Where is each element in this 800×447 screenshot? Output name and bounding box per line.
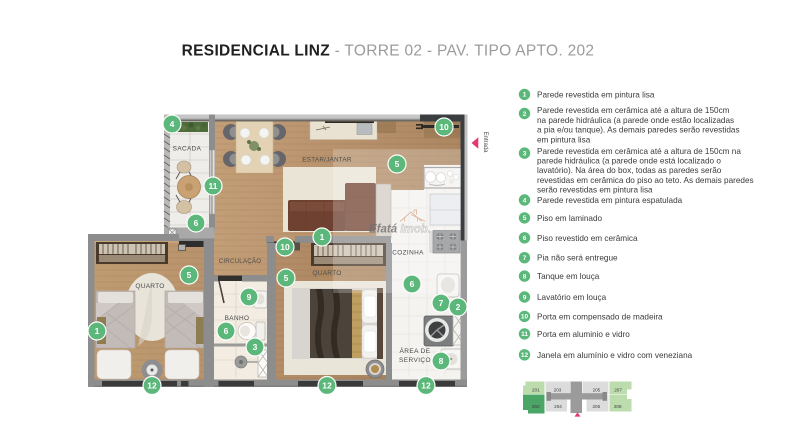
svg-text:12: 12 <box>521 352 529 359</box>
svg-text:204: 204 <box>554 404 562 409</box>
svg-text:Porta em aluminio e vidro: Porta em aluminio e vidro <box>537 330 630 339</box>
svg-text:7: 7 <box>523 255 527 262</box>
svg-text:CIRCULAÇÃO: CIRCULAÇÃO <box>219 258 262 265</box>
svg-text:Piso revestido em cerâmica: Piso revestido em cerâmica <box>537 234 638 243</box>
svg-text:203: 203 <box>554 388 562 393</box>
svg-text:10: 10 <box>280 242 290 252</box>
svg-text:1: 1 <box>95 326 100 336</box>
svg-text:7: 7 <box>439 298 444 308</box>
svg-text:202: 202 <box>532 404 540 409</box>
svg-text:ÁREA DE: ÁREA DE <box>400 346 431 355</box>
svg-text:5: 5 <box>395 159 400 169</box>
svg-text:BANHO: BANHO <box>225 315 250 322</box>
svg-text:1: 1 <box>320 232 325 242</box>
svg-text:5: 5 <box>284 273 289 283</box>
svg-text:6: 6 <box>194 218 199 228</box>
svg-text:QUARTO: QUARTO <box>135 283 164 290</box>
svg-text:Entrada: Entrada <box>482 131 488 153</box>
svg-text:Porta em compensado de madeira: Porta em compensado de madeira <box>537 312 663 321</box>
svg-text:12: 12 <box>421 381 431 391</box>
svg-text:revestidas em cerâmica do piso: revestidas em cerâmica do piso ao teto. … <box>537 176 754 185</box>
svg-text:QUARTO: QUARTO <box>312 270 341 277</box>
svg-text:Lavatório em louça: Lavatório em louça <box>537 293 607 302</box>
svg-text:lavatório). Na área do box, to: lavatório). Na área do box, todas as par… <box>537 166 722 175</box>
svg-text:Pia não será entregue: Pia não será entregue <box>537 254 618 263</box>
svg-text:9: 9 <box>523 294 527 301</box>
svg-text:a pia e/ou tanque). As demais: a pia e/ou tanque). As demais paredes se… <box>537 126 740 135</box>
svg-text:parede hidráulica (a parede on: parede hidráulica (a parede onde está lo… <box>537 157 721 166</box>
svg-text:Janela em alumínio e vidro com: Janela em alumínio e vidro com veneziana <box>537 351 693 360</box>
svg-text:8: 8 <box>439 356 444 366</box>
svg-text:em pintura lisa: em pintura lisa <box>537 135 591 144</box>
svg-text:Parede revestida em cerâmica a: Parede revestida em cerâmica até a altur… <box>537 106 730 115</box>
svg-text:8: 8 <box>523 273 527 280</box>
svg-text:2: 2 <box>523 111 527 118</box>
svg-text:6: 6 <box>523 235 527 242</box>
svg-text:na parede hidráulica (a parede: na parede hidráulica (a parede onde estã… <box>537 116 734 125</box>
svg-text:SERVIÇO: SERVIÇO <box>399 357 431 364</box>
svg-text:12: 12 <box>322 381 332 391</box>
svg-text:208: 208 <box>614 404 622 409</box>
svg-text:ESTAR/JANTAR: ESTAR/JANTAR <box>302 157 352 164</box>
svg-text:9: 9 <box>247 292 252 302</box>
svg-text:11: 11 <box>521 331 528 338</box>
svg-text:5: 5 <box>523 215 527 222</box>
svg-text:12: 12 <box>147 381 157 391</box>
svg-text:RESIDENCIAL LINZ - TORRE 02 -: RESIDENCIAL LINZ - TORRE 02 - PAV. TIPO … <box>182 43 595 60</box>
svg-text:serão revestidas em pintura li: serão revestidas em pintura lisa <box>537 186 653 195</box>
svg-text:Tanque em louça: Tanque em louça <box>537 272 600 281</box>
svg-text:6: 6 <box>224 326 229 336</box>
svg-text:3: 3 <box>253 342 258 352</box>
svg-text:Parede revestida em pintura li: Parede revestida em pintura lisa <box>537 90 655 99</box>
svg-text:206: 206 <box>592 404 600 409</box>
svg-text:11: 11 <box>209 181 218 191</box>
svg-text:5: 5 <box>187 270 192 280</box>
svg-text:4: 4 <box>523 197 527 204</box>
svg-text:2: 2 <box>456 302 461 312</box>
svg-text:10: 10 <box>439 122 449 132</box>
svg-text:201: 201 <box>532 388 540 393</box>
svg-text:10: 10 <box>521 314 529 321</box>
svg-text:3: 3 <box>523 150 527 157</box>
svg-text:COZINHA: COZINHA <box>392 250 424 257</box>
svg-text:1: 1 <box>523 92 527 99</box>
svg-text:Piso em laminado: Piso em laminado <box>537 214 603 223</box>
svg-text:6: 6 <box>410 279 415 289</box>
svg-text:205: 205 <box>593 388 601 393</box>
svg-text:207: 207 <box>614 388 622 393</box>
svg-text:4: 4 <box>170 119 175 129</box>
svg-text:Parede revestida em pintura es: Parede revestida em pintura espatulada <box>537 196 683 205</box>
svg-text:Parede revestida em cerâmica a: Parede revestida em cerâmica até a altur… <box>537 147 741 156</box>
svg-text:SACADA: SACADA <box>173 146 202 153</box>
svg-text:Efatá Imob.: Efatá Imob. <box>369 224 431 236</box>
